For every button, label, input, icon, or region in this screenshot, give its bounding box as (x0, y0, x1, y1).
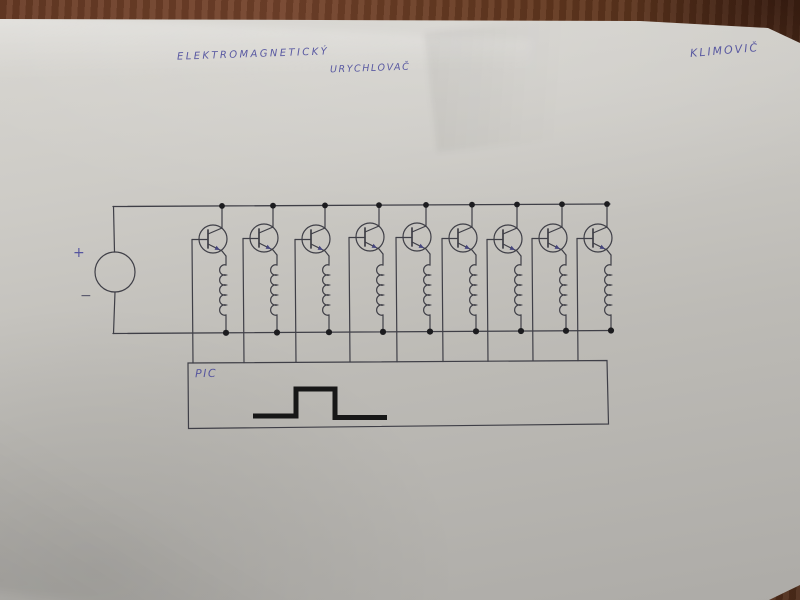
transistor-stage (577, 201, 614, 361)
junction-dot (423, 202, 429, 208)
transistor-collector (365, 205, 379, 232)
transistor-collector (503, 204, 517, 234)
transistor-collector (311, 205, 325, 234)
transistor-collector (458, 205, 472, 233)
transistor-emitter (365, 242, 383, 254)
base-wire-to-pic (487, 240, 488, 362)
junction-dot (608, 327, 614, 333)
transistor-collector (593, 204, 607, 233)
source-circle (95, 252, 135, 292)
source-minus-label: − (80, 288, 92, 304)
base-wire-to-pic (349, 238, 350, 363)
junction-dot (219, 203, 225, 209)
junction-dot (559, 201, 565, 207)
coil (323, 256, 329, 332)
pic-box (188, 361, 609, 429)
coil (470, 255, 476, 331)
circuit-diagram (0, 0, 800, 600)
coil (424, 254, 430, 332)
transistor-stage (243, 203, 280, 363)
transistor-collector (259, 206, 273, 233)
pulse-waveform (253, 389, 387, 418)
coil (377, 254, 383, 332)
transistor-emitter (593, 243, 611, 255)
bottom-supply-rail (113, 331, 612, 334)
transistor-stage (192, 203, 229, 363)
photo-of-circuit-sketch: ELEKTROMAGNETICKÝ URYCHLOVAČ KLIMOVIČ PI… (0, 0, 800, 600)
base-wire-to-pic (577, 239, 578, 361)
top-supply-rail (113, 204, 610, 207)
junction-dot (514, 202, 520, 208)
transistor-stage (396, 202, 433, 362)
transistor-stage (532, 201, 569, 361)
junction-dot (326, 329, 332, 335)
junction-dot (604, 201, 610, 207)
transistor-emitter (548, 243, 566, 255)
pic-controller-label: PIC (195, 367, 217, 380)
junction-dot (322, 203, 328, 209)
base-wire-to-pic (295, 240, 296, 363)
transistor-collector (208, 206, 222, 234)
junction-dot (518, 328, 524, 334)
coil (271, 255, 277, 333)
source-bottom-wire (114, 292, 116, 334)
base-wire-to-pic (192, 240, 193, 363)
transistor-emitter (259, 243, 277, 255)
coil (220, 256, 226, 333)
base-wire-to-pic (532, 239, 533, 361)
junction-dot (563, 328, 569, 334)
base-wire-to-pic (396, 238, 397, 362)
junction-dot (376, 202, 382, 208)
junction-dot (380, 329, 386, 335)
transistor-emitter (458, 243, 476, 255)
voltage-source (95, 207, 135, 334)
transistor-emitter (208, 244, 226, 256)
base-wire-to-pic (442, 239, 443, 362)
source-plus-label: + (73, 245, 85, 261)
junction-dot (473, 328, 479, 334)
transistor-emitter (412, 242, 430, 254)
coil (515, 256, 521, 331)
transistor-stage (295, 203, 332, 363)
transistor-stage (349, 202, 386, 362)
junction-dot (270, 203, 276, 209)
junction-dot (427, 328, 433, 334)
source-top-wire (114, 207, 115, 253)
base-wire-to-pic (243, 239, 244, 363)
transistor-emitter (503, 244, 521, 256)
junction-dot (223, 330, 229, 336)
transistor-emitter (311, 244, 329, 256)
coil (560, 255, 566, 331)
coil (605, 255, 611, 331)
transistor-collector (548, 204, 562, 233)
transistor-stage (442, 202, 479, 362)
junction-dot (469, 202, 475, 208)
transistor-collector (412, 205, 426, 232)
junction-dot (274, 329, 280, 335)
transistor-stage (487, 202, 524, 362)
